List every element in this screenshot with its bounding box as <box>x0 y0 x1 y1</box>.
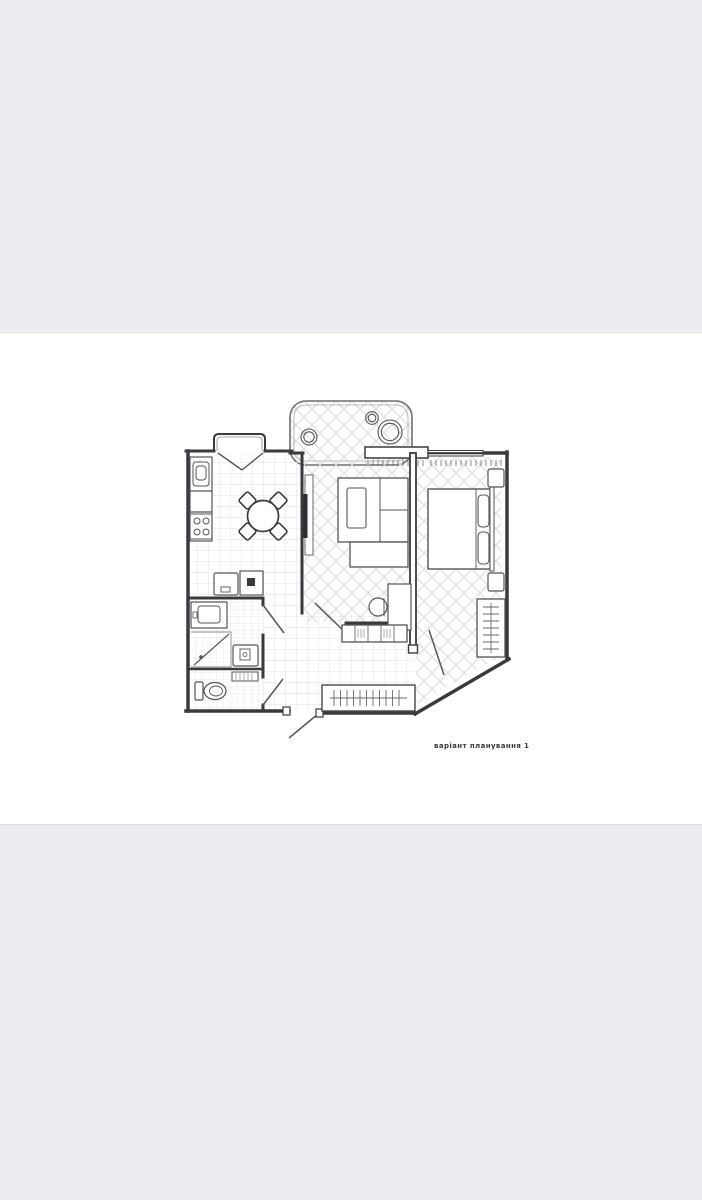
nightstand-icon <box>488 573 504 591</box>
floor-plan-sheet[interactable]: варіант планування 1 <box>0 332 702 825</box>
divider-wall-cap <box>409 645 418 653</box>
vanity-sink-icon <box>191 602 227 628</box>
screenshot-root: варіант планування 1 <box>0 0 702 1200</box>
pillow-icon <box>478 495 489 527</box>
plan-caption: варіант планування 1 <box>434 742 529 750</box>
oven-icon <box>240 571 263 595</box>
wardrobe-icon <box>477 599 505 657</box>
nightstand-icon <box>488 469 504 487</box>
pillow-icon <box>478 532 489 564</box>
toilet-icon <box>195 682 226 700</box>
bath-washer-icon <box>233 645 258 666</box>
floor-plan-drawing <box>0 333 702 824</box>
tv-icon <box>304 494 308 538</box>
window-icon <box>365 447 483 458</box>
sideboard-icon <box>342 625 407 642</box>
desk-icon <box>388 584 411 630</box>
desk-chair-icon <box>369 598 387 616</box>
wc-shelf-icon <box>232 672 258 681</box>
bed-icon <box>428 487 494 571</box>
washing-machine-icon <box>214 573 238 595</box>
hall-wardrobe-icon <box>322 685 415 711</box>
